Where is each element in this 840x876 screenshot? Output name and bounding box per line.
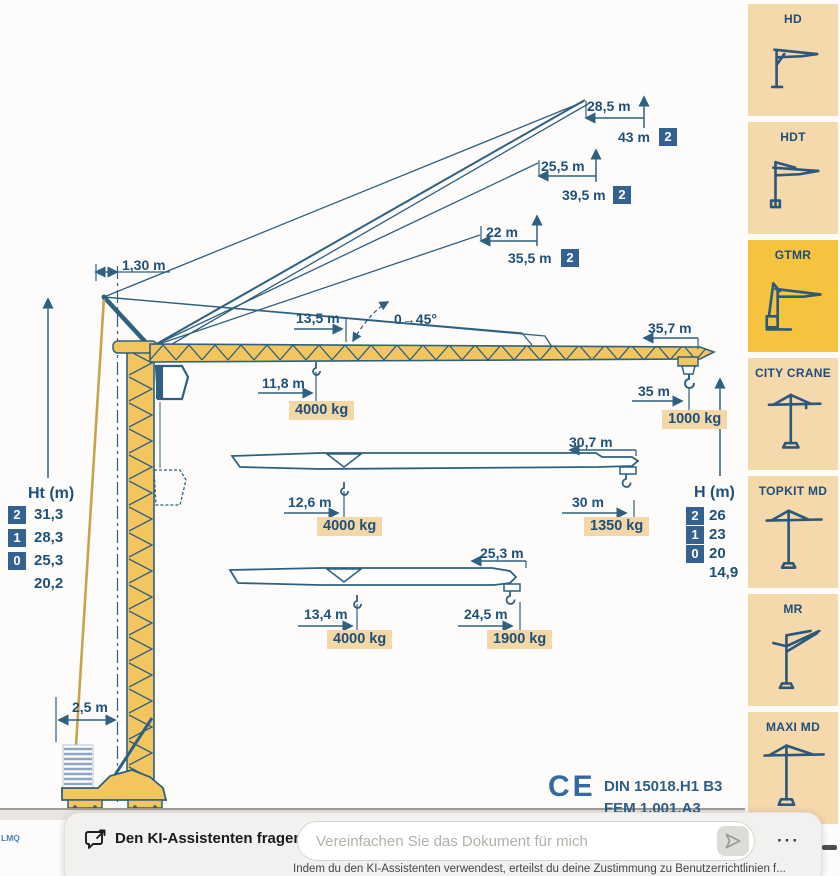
ht-badge: 0 [8, 552, 26, 570]
ht-value: 20,2 [34, 575, 63, 592]
ht-value: 25,3 [34, 552, 63, 569]
crane-spec-page: 28,5 m 43 m 2 25,5 m 39,5 m 2 22 m 35,5 … [0, 0, 840, 876]
sidebar-item-label: MR [748, 602, 838, 616]
dim-height-35: 35,5 m [508, 250, 552, 266]
sidebar-item-maxi-md[interactable]: MAXI MD [748, 712, 838, 824]
dim-height-39: 39,5 m [562, 187, 606, 203]
jib-variant-mid [232, 453, 638, 487]
tower-mast [113, 341, 157, 800]
h-badge: 0 [686, 545, 704, 563]
sidebar-item-hdt[interactable]: HDT [748, 122, 838, 234]
hdt-crane-icon [758, 148, 828, 218]
dim-tip1-radius: 35 m [638, 383, 670, 399]
dim-radius-43: 28,5 m [587, 98, 631, 114]
config-badge: 2 [613, 186, 631, 204]
h-badge: 2 [686, 507, 704, 525]
dim-tip3-radius: 24,5 m [464, 606, 508, 622]
sidebar-item-label: CITY CRANE [748, 366, 838, 380]
dim-tie-radius: 13,5 m [296, 310, 340, 326]
dim-t3-radius: 13,4 m [304, 606, 348, 622]
load-label: 1000 kg [662, 410, 727, 429]
dim-t2-radius: 12,6 m [288, 494, 332, 510]
ellipsis-menu-button[interactable]: ··· [771, 827, 805, 855]
crane-diagram [0, 0, 745, 820]
sidebar-item-hd[interactable]: HD [748, 4, 838, 116]
ballast-stack [63, 745, 93, 793]
apex-pivot [102, 295, 107, 300]
sidebar-item-gtmr[interactable]: GTMR [748, 240, 838, 352]
ai-assistant-title: Den KI-Assistenten fragen [115, 830, 303, 847]
sidebar-item-label: MAXI MD [748, 720, 838, 734]
sidebar-item-label: GTMR [748, 248, 838, 262]
jib-variant-short [230, 568, 520, 604]
erection-rope [76, 297, 104, 745]
topkit-md-crane-icon [758, 502, 828, 572]
city-crane-icon [758, 384, 828, 454]
load-label: 4000 kg [289, 401, 354, 420]
ht-badge: 1 [8, 529, 26, 547]
din-standard: DIN 15018.H1 B3 [604, 778, 722, 795]
sidebar-item-label: TOPKIT MD [748, 484, 838, 498]
mr-crane-icon [758, 620, 828, 690]
load-label: 1350 kg [584, 517, 649, 536]
dim-angle-range: 0→45° [394, 311, 437, 327]
h-badge: 1 [686, 526, 704, 544]
dim-t1-radius: 11,8 m [262, 375, 305, 391]
sidebar-item-mr[interactable]: MR [748, 594, 838, 706]
h-table-title: H (m) [694, 484, 735, 502]
crane-model-sidebar: HD HDT GTMR [746, 0, 840, 876]
sidebar-item-label: HDT [748, 130, 838, 144]
dim-jib-mid: 30,7 m [569, 434, 613, 450]
send-icon [723, 831, 743, 851]
h-value: 14,9 [709, 564, 738, 581]
load-label: 4000 kg [317, 517, 382, 536]
load-label: 4000 kg [327, 630, 392, 649]
ht-badge: 2 [8, 506, 26, 524]
dim-jib-short: 25,3 m [480, 545, 524, 561]
dim-jib-full: 35,7 m [648, 320, 692, 336]
sidebar-item-topkit-md[interactable]: TOPKIT MD [748, 476, 838, 588]
maxi-md-crane-icon [758, 738, 828, 808]
page-edge-marker: LMQ [1, 833, 20, 843]
send-button[interactable] [717, 826, 749, 856]
dim-radius-35: 22 m [486, 224, 518, 240]
config-badge: 2 [659, 128, 677, 146]
operator-cab [154, 366, 188, 505]
sidebar-item-city-crane[interactable]: CITY CRANE [748, 358, 838, 470]
gtmr-crane-icon [758, 266, 828, 336]
ht-value: 28,3 [34, 529, 63, 546]
dim-ballast-width: 2,5 m [72, 699, 108, 715]
ht-value: 31,3 [34, 506, 63, 523]
hook-icon [678, 357, 698, 388]
h-value: 20 [709, 545, 726, 562]
chat-compose-icon [84, 827, 110, 853]
h-value: 26 [709, 507, 726, 524]
dim-apex-offset: 1,30 m [122, 257, 166, 273]
dim-radius-39: 25,5 m [541, 158, 585, 174]
main-jib [150, 344, 714, 362]
h-value: 23 [709, 526, 726, 543]
ai-disclaimer-text: Indem du den KI-Assistenten verwendest, … [293, 863, 786, 875]
config-badge: 2 [561, 249, 579, 267]
dim-tip2-radius: 30 m [572, 494, 604, 510]
sidebar-item-label: HD [748, 12, 838, 26]
ht-table-title: Ht (m) [28, 485, 74, 503]
hd-crane-icon [758, 30, 828, 100]
dim-height-43: 43 m [618, 129, 650, 145]
load-label: 1900 kg [487, 630, 552, 649]
ce-mark: CE [548, 770, 596, 804]
ai-assistant-bar: Den KI-Assistenten fragen ··· Indem du d… [64, 812, 822, 876]
scrollbar-thumb[interactable] [822, 845, 837, 850]
ai-prompt-input[interactable] [297, 821, 755, 861]
